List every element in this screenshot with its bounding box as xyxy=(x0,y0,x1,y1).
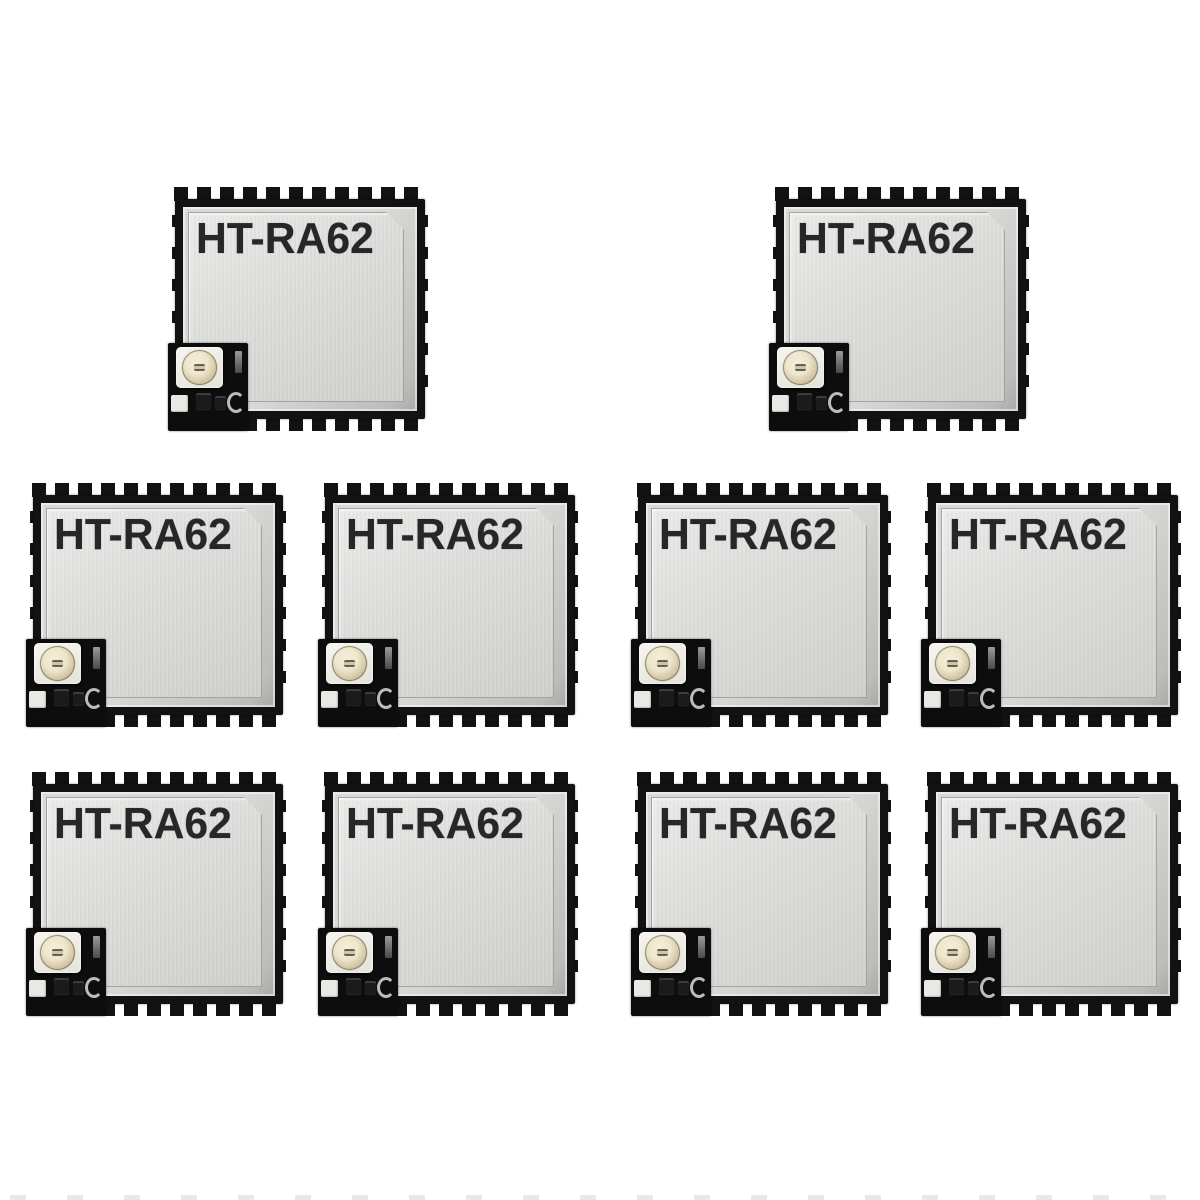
module-pcb: HT-RA62 xyxy=(33,495,283,715)
smd-component xyxy=(678,981,689,994)
smd-component xyxy=(73,692,84,705)
solder-pad xyxy=(634,980,651,997)
antenna-connector-area xyxy=(769,343,849,431)
antenna-connector-area xyxy=(318,639,398,727)
ufl-antenna-connector xyxy=(929,643,976,684)
module-pcb: HT-RA62 xyxy=(638,495,888,715)
solder-glint xyxy=(980,977,998,998)
antenna-connector-area xyxy=(168,343,248,431)
connector-ground-tab xyxy=(836,351,843,373)
ufl-antenna-connector xyxy=(34,643,81,684)
solder-glint xyxy=(980,688,998,709)
connector-ground-tab xyxy=(698,936,705,958)
connector-socket-icon xyxy=(40,935,75,970)
ufl-antenna-connector xyxy=(176,347,223,388)
module-8: HT-RA62 xyxy=(322,772,578,1016)
smd-component xyxy=(54,689,69,705)
module-label: HT-RA62 xyxy=(54,513,232,557)
product-photo: HT-RA62 HT-RA62 xyxy=(0,0,1200,1200)
ufl-antenna-connector xyxy=(639,643,686,684)
connector-socket-icon xyxy=(645,646,680,681)
module-label: HT-RA62 xyxy=(949,802,1127,846)
smd-component xyxy=(365,692,376,705)
module-label: HT-RA62 xyxy=(196,217,374,261)
module-3: HT-RA62 xyxy=(30,483,286,727)
solder-pad xyxy=(772,395,789,412)
module-label: HT-RA62 xyxy=(54,802,232,846)
module-label: HT-RA62 xyxy=(949,513,1127,557)
smd-component xyxy=(949,978,964,994)
ufl-antenna-connector xyxy=(639,932,686,973)
solder-glint xyxy=(377,977,395,998)
ufl-antenna-connector xyxy=(929,932,976,973)
module-pcb: HT-RA62 xyxy=(776,199,1026,419)
smd-component xyxy=(365,981,376,994)
smd-component xyxy=(346,978,361,994)
module-pcb: HT-RA62 xyxy=(325,495,575,715)
smd-component xyxy=(816,396,827,409)
solder-glint xyxy=(85,688,103,709)
smd-component xyxy=(659,689,674,705)
solder-glint xyxy=(690,688,708,709)
module-label: HT-RA62 xyxy=(659,802,837,846)
solder-glint xyxy=(690,977,708,998)
solder-pad xyxy=(924,691,941,708)
module-5: HT-RA62 xyxy=(635,483,891,727)
ufl-antenna-connector xyxy=(326,932,373,973)
connector-socket-icon xyxy=(332,935,367,970)
solder-pad xyxy=(29,980,46,997)
module-9: HT-RA62 xyxy=(635,772,891,1016)
module-label: HT-RA62 xyxy=(797,217,975,261)
connector-socket-icon xyxy=(645,935,680,970)
antenna-connector-area xyxy=(921,639,1001,727)
module-pcb: HT-RA62 xyxy=(175,199,425,419)
module-10: HT-RA62 xyxy=(925,772,1181,1016)
solder-glint xyxy=(227,392,245,413)
connector-socket-icon xyxy=(935,646,970,681)
module-pcb: HT-RA62 xyxy=(638,784,888,1004)
module-7: HT-RA62 xyxy=(30,772,286,1016)
connector-socket-icon xyxy=(935,935,970,970)
module-6: HT-RA62 xyxy=(925,483,1181,727)
antenna-connector-area xyxy=(26,639,106,727)
smd-component xyxy=(797,393,812,409)
antenna-connector-area xyxy=(26,928,106,1016)
solder-glint xyxy=(377,688,395,709)
smd-component xyxy=(215,396,226,409)
antenna-connector-area xyxy=(921,928,1001,1016)
antenna-connector-area xyxy=(631,928,711,1016)
solder-pad xyxy=(171,395,188,412)
connector-ground-tab xyxy=(988,936,995,958)
solder-pad xyxy=(321,691,338,708)
module-label: HT-RA62 xyxy=(346,513,524,557)
module-2: HT-RA62 xyxy=(773,187,1029,431)
antenna-connector-area xyxy=(631,639,711,727)
module-4: HT-RA62 xyxy=(322,483,578,727)
connector-ground-tab xyxy=(235,351,242,373)
connector-socket-icon xyxy=(40,646,75,681)
solder-pad xyxy=(29,691,46,708)
connector-ground-tab xyxy=(988,647,995,669)
connector-socket-icon xyxy=(182,350,217,385)
module-pcb: HT-RA62 xyxy=(928,495,1178,715)
connector-ground-tab xyxy=(698,647,705,669)
smd-component xyxy=(73,981,84,994)
solder-pad xyxy=(634,691,651,708)
module-label: HT-RA62 xyxy=(659,513,837,557)
module-1: HT-RA62 xyxy=(172,187,428,431)
cropped-pin-row xyxy=(10,1195,1200,1200)
solder-pad xyxy=(924,980,941,997)
connector-ground-tab xyxy=(93,936,100,958)
smd-component xyxy=(968,981,979,994)
ufl-antenna-connector xyxy=(34,932,81,973)
smd-component xyxy=(678,692,689,705)
ufl-antenna-connector xyxy=(326,643,373,684)
connector-ground-tab xyxy=(385,647,392,669)
smd-component xyxy=(659,978,674,994)
smd-component xyxy=(949,689,964,705)
connector-ground-tab xyxy=(385,936,392,958)
solder-glint xyxy=(828,392,846,413)
module-label: HT-RA62 xyxy=(346,802,524,846)
smd-component xyxy=(196,393,211,409)
solder-pad xyxy=(321,980,338,997)
ufl-antenna-connector xyxy=(777,347,824,388)
module-pcb: HT-RA62 xyxy=(33,784,283,1004)
connector-socket-icon xyxy=(332,646,367,681)
antenna-connector-area xyxy=(318,928,398,1016)
connector-socket-icon xyxy=(783,350,818,385)
smd-component xyxy=(346,689,361,705)
module-pcb: HT-RA62 xyxy=(325,784,575,1004)
solder-glint xyxy=(85,977,103,998)
smd-component xyxy=(968,692,979,705)
connector-ground-tab xyxy=(93,647,100,669)
module-pcb: HT-RA62 xyxy=(928,784,1178,1004)
smd-component xyxy=(54,978,69,994)
